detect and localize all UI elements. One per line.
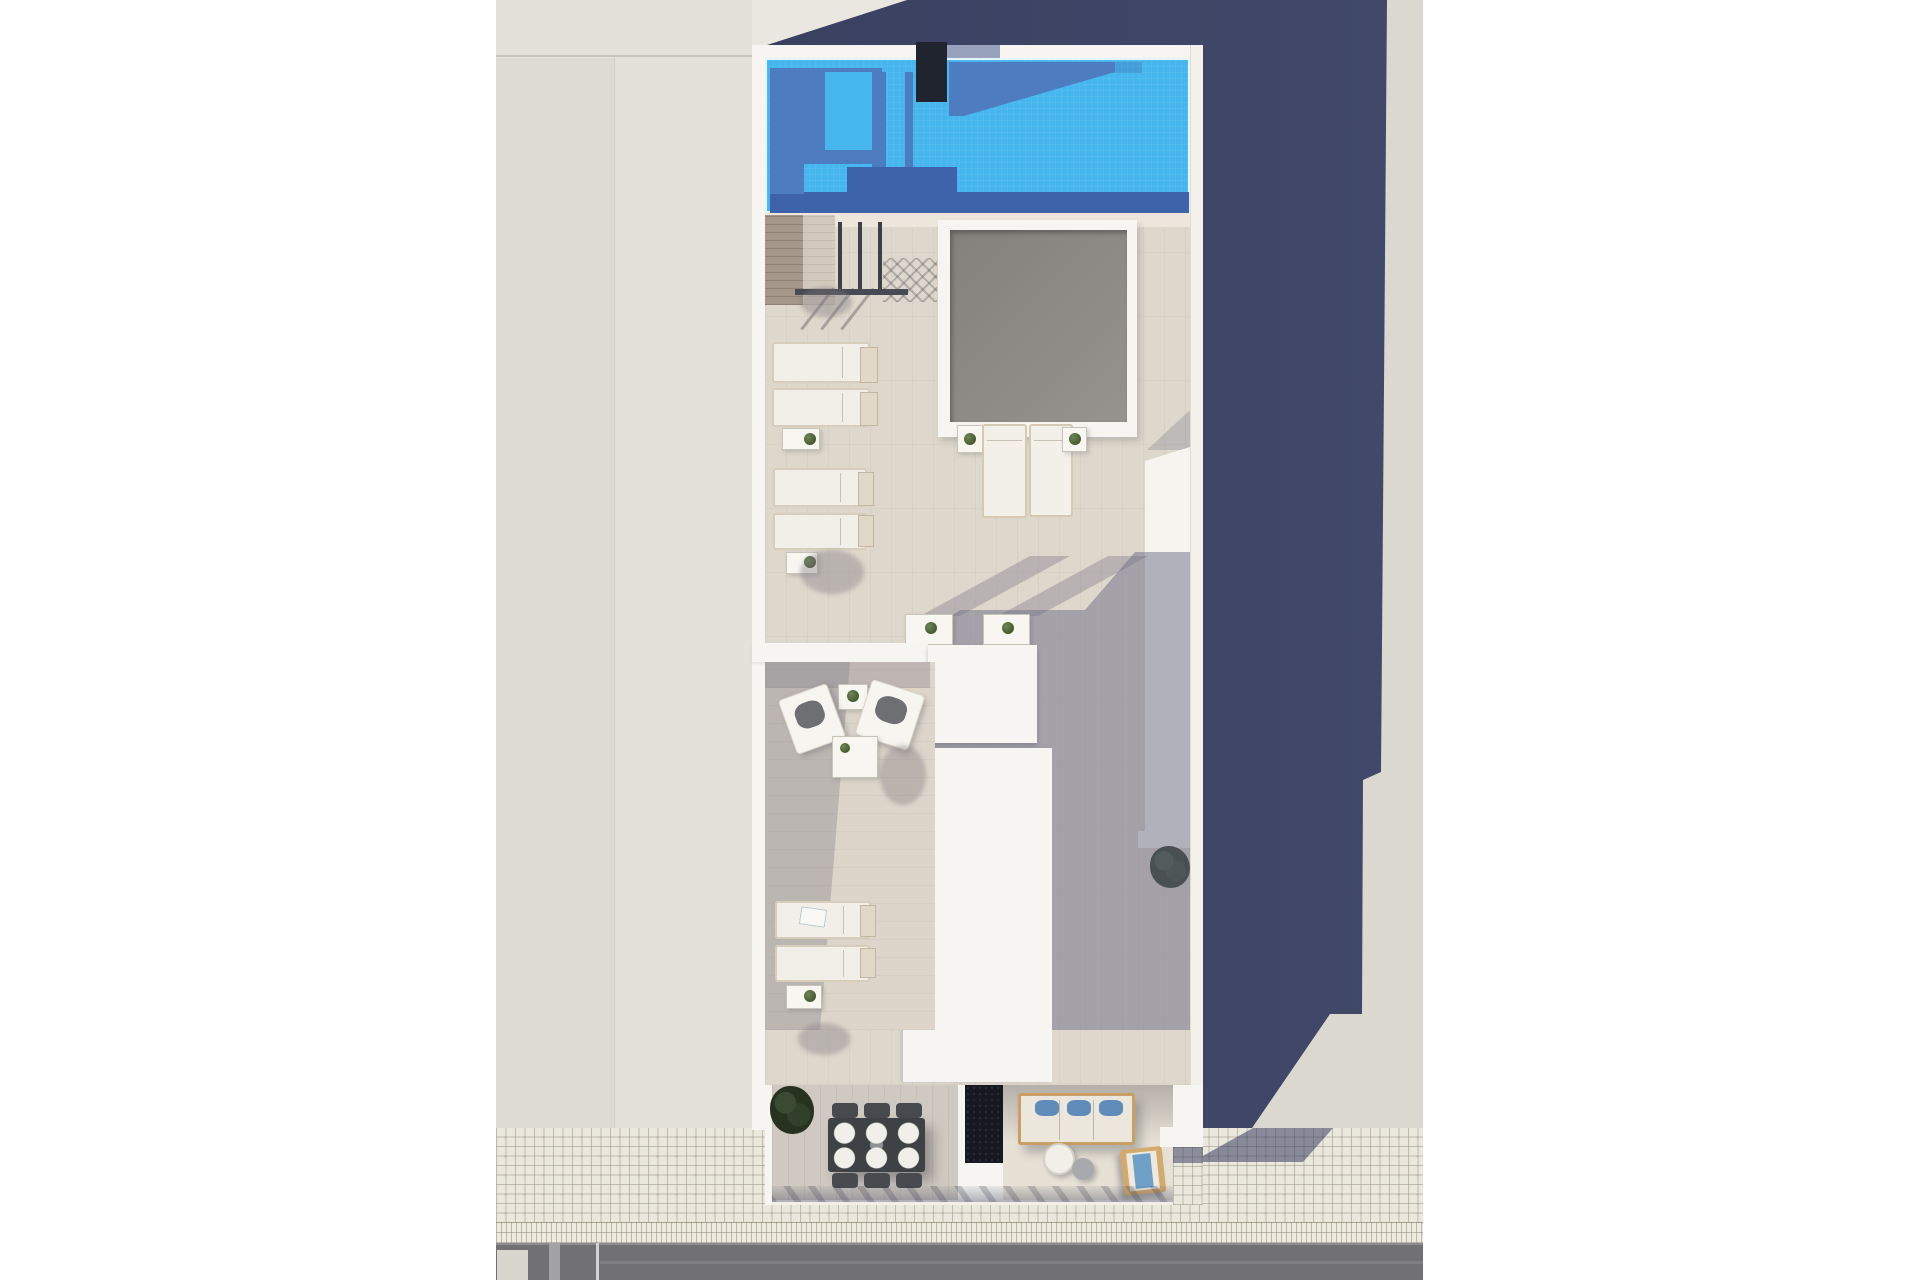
armchair-cushion bbox=[792, 697, 828, 731]
potted-plant bbox=[847, 690, 859, 702]
round-side-table bbox=[1072, 1158, 1094, 1180]
cushion-seam bbox=[1059, 1100, 1060, 1140]
lounger-side-table bbox=[860, 392, 878, 426]
sun-lounger bbox=[773, 513, 867, 550]
dining-chair bbox=[896, 1103, 922, 1118]
potted-plant bbox=[804, 433, 816, 445]
road-marking-band bbox=[549, 1243, 560, 1280]
bush bbox=[1086, 421, 1130, 465]
pillow bbox=[1067, 1100, 1091, 1116]
chimney-wall-shadow bbox=[947, 45, 1000, 58]
right-parapet-top bbox=[1190, 45, 1203, 1085]
skylight-glass bbox=[950, 230, 1127, 422]
stairwell-void bbox=[965, 1085, 1003, 1163]
pool-corner-shade bbox=[770, 152, 804, 194]
potted-plant bbox=[804, 990, 816, 1002]
sun-lounger bbox=[772, 388, 870, 427]
dining-chair bbox=[832, 1103, 858, 1118]
lounger-side-table bbox=[860, 347, 878, 383]
coffee-table bbox=[832, 736, 878, 778]
facade-groove-line bbox=[496, 55, 752, 57]
armchair-cushion bbox=[872, 693, 910, 727]
bush bbox=[775, 300, 819, 340]
potted-plant bbox=[925, 622, 937, 634]
bush bbox=[770, 1086, 814, 1134]
bush bbox=[916, 1082, 958, 1120]
railing-post bbox=[858, 222, 862, 290]
pillow bbox=[1099, 1100, 1123, 1116]
bush-shadow bbox=[800, 550, 864, 594]
corner-wall bbox=[1160, 1127, 1203, 1147]
chimney-shadow-on-water bbox=[949, 62, 1115, 116]
potted-plant bbox=[1002, 622, 1014, 634]
roof-volume-upper bbox=[928, 645, 1037, 743]
sun-lounger bbox=[773, 468, 867, 507]
building-roof bbox=[752, 45, 1203, 1085]
lounger-side-table bbox=[858, 515, 874, 547]
facade-shade-split bbox=[496, 58, 615, 1130]
railing-post bbox=[838, 222, 842, 290]
potted-plant bbox=[964, 433, 976, 445]
pool-deep-end bbox=[770, 192, 1189, 213]
pool-deep-end-step bbox=[847, 167, 957, 195]
skylight-frame bbox=[938, 220, 1137, 437]
lounger-side-table bbox=[860, 948, 876, 978]
chair-shadow bbox=[880, 745, 926, 805]
pool-step-platform bbox=[825, 72, 874, 150]
swimming-pool bbox=[765, 58, 1190, 213]
blue-towel bbox=[1132, 1153, 1153, 1189]
sun-lounger bbox=[982, 424, 1027, 518]
pillow bbox=[1035, 1100, 1059, 1116]
table-decor bbox=[840, 743, 850, 753]
bush bbox=[772, 583, 818, 631]
rooftop-render bbox=[0, 0, 1920, 1280]
sidewalk-notch-shadow bbox=[1173, 1147, 1203, 1163]
railing-post bbox=[878, 222, 882, 290]
chimney-block bbox=[916, 42, 947, 102]
street-terraces bbox=[765, 1085, 1203, 1205]
dining-chair bbox=[864, 1103, 890, 1118]
sun-lounger bbox=[772, 342, 870, 383]
towel bbox=[799, 906, 827, 927]
bush bbox=[1150, 1026, 1188, 1064]
lounger-side-table bbox=[860, 905, 876, 937]
outdoor-sofa bbox=[1018, 1093, 1135, 1145]
dining-table bbox=[828, 1118, 925, 1172]
sidewalk-border-band bbox=[496, 1222, 1423, 1243]
balustrade-edge bbox=[772, 1202, 1173, 1205]
lounger-side-table bbox=[858, 472, 874, 506]
left-wall-stub bbox=[752, 1085, 765, 1130]
road-marking-box bbox=[497, 1250, 528, 1280]
cushion-seam bbox=[1093, 1100, 1094, 1140]
road-marking-line bbox=[596, 1243, 599, 1280]
bush bbox=[774, 1028, 816, 1064]
pergola-lattice-shadow bbox=[883, 258, 937, 302]
road-lane-line bbox=[600, 1261, 1423, 1264]
sun-lounger bbox=[775, 945, 870, 982]
potted-plant bbox=[1069, 433, 1081, 445]
